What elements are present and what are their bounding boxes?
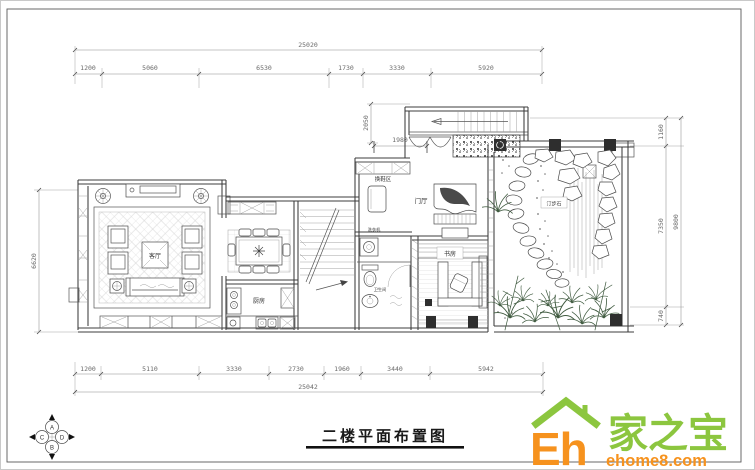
dim-bottom-total: 25042: [298, 383, 318, 391]
dimension-entry: 2050 1980: [362, 102, 429, 153]
entry-area: 换鞋区 门厅: [356, 111, 520, 238]
dim-bot-seg-3: 3330: [226, 365, 242, 373]
dim-left: 6620: [30, 253, 38, 269]
dim-right-9800: 9800: [672, 214, 680, 230]
dim-entry-1980: 1980: [392, 136, 408, 144]
dim-bot-seg-6: 3440: [387, 365, 403, 373]
dim-bot-seg-5: 1960: [334, 365, 350, 373]
dim-top-seg-5: 3330: [389, 64, 405, 72]
floorplan-canvas: 25020 1200 5060 6530 1730 3330 5920 1200…: [0, 0, 755, 470]
washer-label: 洗衣机: [368, 226, 381, 233]
dim-top-seg-3: 6530: [256, 64, 272, 72]
dim-entry-2050: 2050: [362, 115, 370, 131]
dim-bot-seg-7: 5942: [478, 365, 494, 373]
floorplan-sheet: 25020 1200 5060 6530 1730 3330 5920 1200…: [0, 0, 755, 470]
compass-icon: A B C D: [29, 414, 75, 460]
dim-right-7350: 7350: [657, 218, 665, 234]
living-room: 客厅: [94, 184, 222, 328]
title-text: 二楼平面布置图: [322, 427, 448, 445]
dim-bot-seg-4: 2730: [288, 365, 304, 373]
study-label: 书房: [444, 250, 456, 258]
dining-area: [228, 202, 290, 273]
drawing-title: 二楼平面布置图: [306, 427, 464, 449]
bathroom-label: 卫生间: [374, 286, 387, 293]
dim-bot-seg-1: 1200: [80, 365, 96, 373]
grand-piano: [434, 184, 476, 238]
water-deck: [570, 168, 602, 278]
dim-right-740: 740: [657, 310, 665, 322]
compass-s: B: [50, 446, 54, 452]
garden: 汀步石: [482, 149, 620, 330]
dim-top-seg-4: 1730: [338, 64, 354, 72]
logo-brand: 家之宝: [608, 412, 728, 456]
dim-top-seg-6: 5920: [478, 64, 494, 72]
compass-n: A: [50, 426, 54, 432]
brand-logo: Eh 家之宝 ehome8.com: [530, 401, 728, 470]
kitchen-label: 厨房: [253, 297, 265, 305]
dimension-bottom: 1200 5110 3330 2730 1960 3440 5942 25042: [73, 362, 545, 396]
shoe-area-label: 换鞋区: [375, 175, 392, 183]
compass-e: D: [60, 436, 65, 442]
dim-top-seg-2: 5060: [142, 64, 158, 72]
foyer-label: 门厅: [415, 196, 429, 205]
bathroom: 洗衣机 卫生间: [360, 226, 410, 308]
logo-site: ehome8.com: [606, 452, 707, 470]
living-room-label: 客厅: [149, 252, 161, 260]
kitchen: 厨房: [227, 288, 298, 329]
compass-w: C: [40, 436, 45, 442]
dim-bot-seg-2: 5110: [142, 365, 158, 373]
dim-top-total: 25020: [298, 41, 318, 49]
plant-icon: [96, 189, 111, 204]
dim-top-seg-1: 1200: [80, 64, 96, 72]
stones-label: 汀步石: [546, 201, 561, 208]
dimension-left: 6620: [30, 188, 78, 334]
dim-right-1160: 1160: [657, 124, 665, 140]
dimension-top: 25020 1200 5060 6530 1730 3330 5920: [73, 41, 544, 88]
study-room: 书房: [418, 240, 488, 328]
main-staircase: [300, 208, 355, 290]
logo-eh: Eh: [530, 423, 587, 470]
plant-icon: [194, 189, 209, 204]
